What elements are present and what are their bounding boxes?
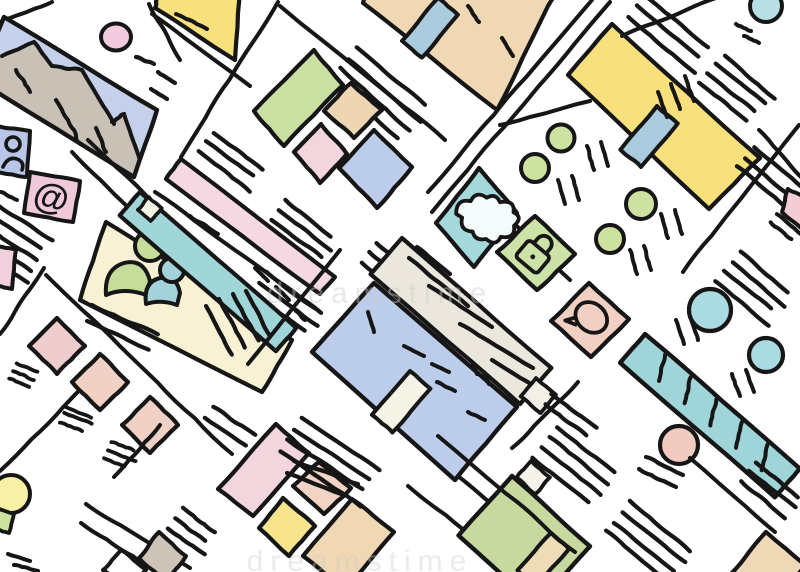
svg-text:dreamstime: dreamstime	[247, 545, 474, 572]
svg-text:dreamstime: dreamstime	[267, 277, 494, 310]
